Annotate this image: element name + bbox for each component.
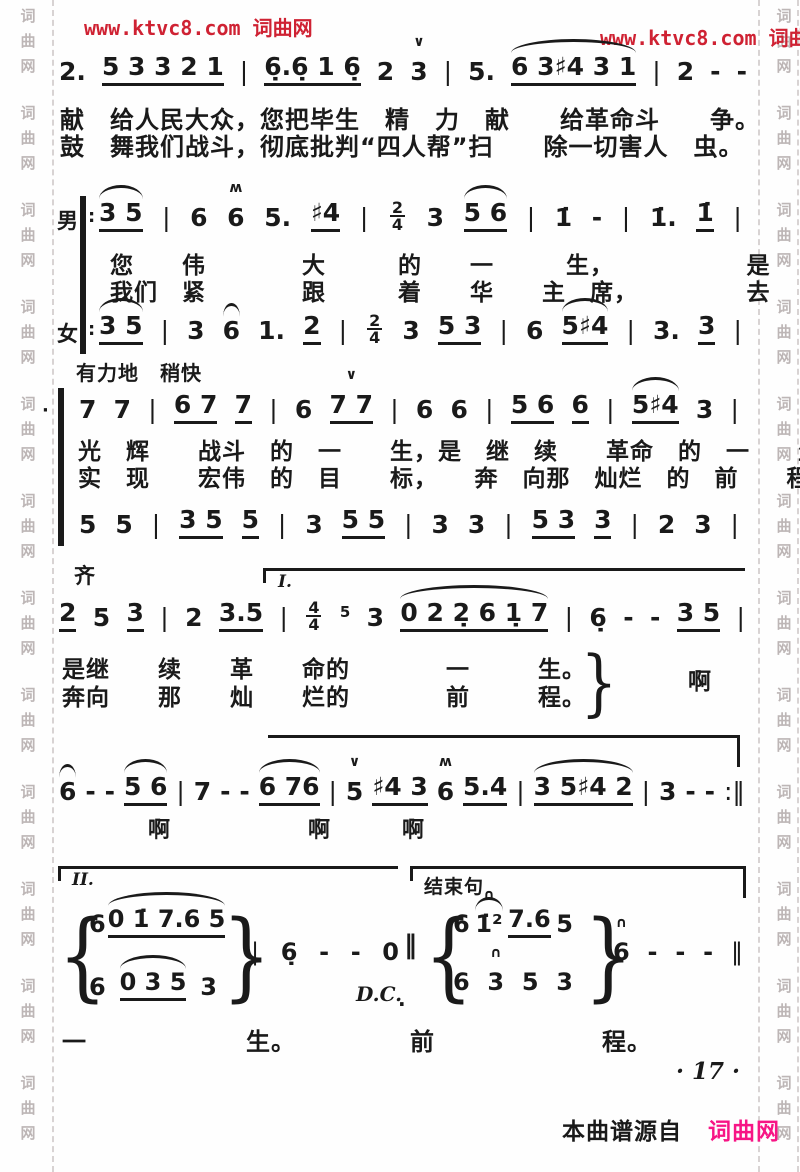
note-token: - [647,938,659,966]
side-watermark-char: 曲 [776,514,791,539]
note-token: 3 [426,203,445,232]
side-watermark-char: 网 [20,636,35,661]
note-token: ♯4 [310,198,342,232]
side-watermark-char: 曲 [776,805,791,830]
ornament-mark: ∨ [346,368,357,382]
note-text: 7 [235,390,252,424]
volta2-bracket [58,866,398,869]
side-watermark-char: 网 [20,830,35,855]
volta1-continuation-bracket [268,735,740,738]
note-text: 6 [89,973,106,1001]
note-text: 5 [346,777,363,806]
note-token: 6 [189,203,208,232]
note-text: 6 [613,938,630,966]
note-text: 5. [468,57,495,86]
note-token: 2 [657,510,676,539]
side-watermark-char: 曲 [20,805,35,830]
note-token: | [651,57,661,86]
note-token: | [159,603,169,632]
note-text: 3 [305,510,322,539]
note-token: 3 [467,510,486,539]
note-token: 3∨ [409,57,428,86]
side-watermark-char: 曲 [20,999,35,1024]
scanned-sheet-music-page: 词曲网词曲网词曲网词曲网词曲网词曲网词曲网词曲网词曲网词曲网词曲网词曲网 词曲网… [0,0,800,1172]
ending-bracket [410,866,746,869]
right-dashed-rule [758,0,760,1172]
note-token: 6 [88,973,107,1001]
footer-source-text: 本曲谱源自 [562,1112,682,1146]
barline: | [627,316,635,345]
barline: | [444,57,452,86]
note-token: 6 76 [258,772,321,806]
barline: | [733,203,741,232]
barline: | [485,395,493,424]
side-watermark-char: 曲 [20,126,35,151]
note-token: 6̣.6̣ 1 6̣ [263,52,361,86]
side-watermark-char: 网 [776,248,791,273]
side-watermark-char: 网 [20,927,35,952]
note-token: | [403,510,413,539]
barline: | [652,57,660,86]
side-watermark-char: 词 [776,1071,791,1096]
note-token: 1̇²∩ [474,910,503,938]
music-line-1: 2.5 3 3 2 1|6̣.6̣ 1 6̣23∨|5.6 3♯4 3 1|2-… [58,52,748,86]
note-token: ‖ [730,938,744,966]
note-text: 3 [694,510,711,539]
note-text: 5 [79,510,96,539]
note-token: 3.5 [218,598,264,632]
time-signature: 24 [366,313,383,345]
note-token: | [151,510,161,539]
note-text: 2 [677,57,694,86]
note-text: 1̇. [650,203,677,232]
barline: | [280,603,288,632]
note-token: 3 [695,395,714,424]
note-token: - [318,938,330,966]
note-token: | [279,603,289,632]
note-text: 5. [264,203,291,232]
music-line-female: 3 5|361.2|2435 3|65♯4|3.3| [98,311,743,345]
note-text: 3 [487,968,504,996]
lyrics-verse2: 鼓 舞我们战斗，彻底批判“四人帮”扫 除一切害人 虫。 [60,127,744,162]
barline: | [176,777,184,806]
side-watermark-char: 曲 [20,223,35,248]
note-token: | [239,57,249,86]
barline: | [390,395,398,424]
barline: | [251,938,259,966]
note-token: 5♯4 [631,390,680,424]
note-text: - [703,938,713,966]
note-token: - [684,777,696,806]
note-token: 3 [126,598,145,632]
note-token: 6 [415,395,434,424]
time-signature: 44 [305,600,322,632]
note-token: | [733,316,743,345]
note-text: 6 [89,910,106,938]
note-text: - [675,938,685,966]
side-watermark-char: 词 [20,4,35,29]
note-token: | [605,395,615,424]
note-token: | [268,395,278,424]
note-token: 1̇ [695,198,714,232]
side-watermark-char: 词 [20,780,35,805]
note-token: | [359,203,369,232]
note-token: | [564,603,574,632]
dc-marking: D.C. [356,982,402,1006]
note-token: 2 [302,311,321,345]
unison-marker: 齐 [74,560,95,590]
note-token: - [649,603,661,632]
note-token: 5 [92,603,111,632]
footer-site-name: 词曲网 [708,1112,780,1146]
note-text: 6 [227,203,244,232]
note-text: - [623,603,633,632]
system-bracket-2 [58,388,64,546]
side-watermark-char: 词 [20,101,35,126]
note-token: - [350,938,362,966]
note-text: 3 [698,311,715,345]
note-token: 3 5 [676,598,722,632]
note-token: | [641,777,651,806]
note-token: 5 [78,510,97,539]
lyrics-final-b: 前 [410,1022,435,1057]
note-text: 6 [223,316,240,345]
note-token: 6 7 [173,390,219,424]
ornament-mark: ∨ [349,755,360,769]
note-token: 5. [467,57,496,86]
note-text: 6 [572,390,589,424]
note-text: 6 [416,395,433,424]
left-watermark-column: 词曲网词曲网词曲网词曲网词曲网词曲网词曲网词曲网词曲网词曲网词曲网词曲网 [16,4,40,1168]
side-watermark-char: 曲 [776,223,791,248]
lyrics-ah-2: 啊 [308,812,331,844]
note-token: | [730,395,740,424]
note-text: 3 [187,316,204,345]
note-token: | [626,316,636,345]
side-watermark-char: 网 [20,345,35,370]
side-watermark-char: 词 [20,974,35,999]
barline: | [278,510,286,539]
music-final-middle: |6̣--0 [250,938,400,966]
note-token: 1̇ [554,203,573,232]
barline: | [630,510,638,539]
note-text: 2 [658,510,675,539]
note-text: - [220,777,230,806]
side-watermark-char: 网 [776,539,791,564]
note-token: | [498,316,508,345]
time-signature-part: 4 [367,328,382,345]
music-final-group2-top: 61̇²∩7.65 [452,905,574,938]
note-text: 3 5 [99,198,143,232]
time-signature: 24 [389,200,406,232]
barline: | [516,777,524,806]
side-watermark-char: 网 [20,151,35,176]
note-text: - [705,777,715,806]
note-token: 3. [652,316,681,345]
note-text: 5 5 [342,505,386,539]
note-text: 6̣ [589,603,606,632]
note-token: - [704,777,716,806]
note-token: 3 [555,968,574,996]
barline: | [734,316,742,345]
note-token: 5 [555,910,574,938]
note-token: 5 [114,510,133,539]
note-text: 6 [295,395,312,424]
note-text: 1̇ [696,198,713,232]
note-text: 6 [59,777,76,806]
side-watermark-char: 网 [20,248,35,273]
side-watermark-char: 曲 [20,1096,35,1121]
note-text: 6 [437,777,454,806]
side-watermark-char: 网 [776,54,791,79]
side-watermark-char: 词 [776,974,791,999]
side-watermark-char: 曲 [20,320,35,345]
note-token: 3 [431,510,450,539]
right-watermark-column: 词曲网词曲网词曲网词曲网词曲网词曲网词曲网词曲网词曲网词曲网词曲网词曲网 [772,4,796,1168]
side-watermark-char: 网 [776,151,791,176]
note-text: ♯4 3 [372,772,428,806]
note-token: - [702,938,714,966]
note-text: ♯4 [311,198,341,232]
note-text: 3 [432,510,449,539]
note-text: 3 5 [677,598,721,632]
side-watermark-char: 词 [20,683,35,708]
note-token: 3 5 [98,311,144,345]
side-watermark-char: 网 [776,733,791,758]
note-text: - [710,57,720,86]
note-token: 6ʍ [226,203,245,232]
note-token: 3 [401,316,420,345]
side-watermark-char: 网 [776,1024,791,1049]
note-text: 3 [659,777,676,806]
barline: | [504,510,512,539]
side-watermark-char: 词 [776,295,791,320]
barline: | [731,510,739,539]
note-text: - [239,777,249,806]
note-text: 3 5♯4 2 [534,772,633,806]
note-text: - [105,777,115,806]
note-token: | [484,395,494,424]
lyrics-unison-b: 奔向 那 灿 烂的 前 [62,678,470,712]
time-signature-part: 2 [392,200,403,215]
music-line-lower-voice: 55|3 55|35 5|33|5 33|23| [78,505,740,539]
note-text: 7 [194,777,211,806]
note-token: 3 5 [98,198,144,232]
note-token: 2 [58,598,77,632]
note-text: 0 2 2̣ 6 1̣ 7 [400,598,548,632]
note-text: 3 [696,395,713,424]
side-watermark-char: 词 [20,1071,35,1096]
note-text: 3 [556,968,573,996]
barline: | [404,510,412,539]
note-token: 3 [693,510,712,539]
note-token: 7.6 [507,905,552,938]
note-token: 6∩ [612,938,631,966]
ornament-mark: ∩ [483,888,494,902]
note-token: 5 3 [531,505,577,539]
ornament-mark: ∨ [413,35,424,49]
music-line-male: 3 5|66ʍ5.♯4|2435 6|1̇-|1̇.1̇| [98,198,743,232]
note-token: | [732,203,742,232]
barline: | [606,395,614,424]
note-token: 0 [381,938,400,966]
ornament-mark: ʍ [229,181,242,195]
side-watermark-char: 曲 [776,126,791,151]
tempo-marking: 有力地 稍快 [76,357,202,386]
note-token: 6̣ [280,938,299,966]
note-token: 7 7∨ [329,390,375,424]
note-token: 6 [525,316,544,345]
barline: | [622,203,630,232]
note-text: 3 [200,973,217,1001]
note-text: 6̣ [281,938,298,966]
side-watermark-char: 曲 [776,611,791,636]
side-watermark-char: 词 [20,198,35,223]
note-text: 0 3 5 [120,968,187,1001]
barline: | [737,603,745,632]
note-token: | [526,203,536,232]
note-text: 3 [594,505,611,539]
note-token: 5 [521,968,540,996]
note-text: 5 [242,505,259,539]
note-text: 2 [377,57,394,86]
repeat-dots-male: : [88,206,95,227]
music-line-melisma: 6--5 6|7--6 76|5∨♯4 36ʍ5.4|3 5♯4 2|3--:‖ [58,772,746,806]
note-text: - [737,57,747,86]
side-watermark-char: 词 [20,877,35,902]
music-final-group1-bottom: 60 3 53 [88,968,218,1001]
note-token: 3 [697,311,716,345]
note-token: 5 [339,603,351,632]
barline: | [499,316,507,345]
lyrics-ah-1: 啊 [148,812,171,844]
time-signature-part: 2 [369,313,380,328]
side-watermark-char: 曲 [776,708,791,733]
note-text: - [650,603,660,632]
note-text: - [351,938,361,966]
time-signature-part: 4 [306,615,321,632]
note-text: 6 [190,203,207,232]
note-token: 6 [222,316,241,345]
barline: | [240,57,248,86]
ornament-mark: ʍ [439,755,452,769]
note-token: 0 1̇ 7.6 5 [107,905,227,938]
note-token: 5∨ [345,777,364,806]
note-text: 3 [427,203,444,232]
note-token: 0 3 5 [119,968,188,1001]
lyrics-brace: } [581,640,618,724]
note-text: 3.5 [219,598,263,632]
note-token: :‖ [723,777,746,806]
lyrics-duet-b: 实 现 宏伟 的 目 标， 奔 向那 灿烂 的 前 程， [78,459,800,493]
ending-label: 结束句 [424,872,484,899]
side-watermark-char: 网 [776,830,791,855]
side-watermark-char: 词 [20,392,35,417]
side-watermark-char: 网 [20,1121,35,1146]
music-line-upper-voice: 77|6 77|67 7∨|66|5 66|5♯43| [78,390,740,424]
note-text: 0 [382,938,399,966]
side-watermark-char: 词 [20,295,35,320]
note-token: 7 [234,390,253,424]
note-text: 7 [114,395,131,424]
lyrics-final-a-end: 生。 [246,1022,296,1057]
note-token: - [219,777,231,806]
note-token: 7 [78,395,97,424]
note-text: 2 [303,311,320,345]
barline: | [160,603,168,632]
side-watermark-char: 曲 [20,611,35,636]
note-token: | [175,777,185,806]
barline: | [161,316,169,345]
note-token: 6̣ [588,603,607,632]
note-text: 5♯4 [632,390,679,424]
note-token: | [389,395,399,424]
side-watermark-char: 词 [776,198,791,223]
volta1-bracket [263,568,745,571]
note-token: | [328,777,338,806]
note-token: 3 [593,505,612,539]
note-text: 1. [258,316,285,345]
note-text: 0 1̇ 7.6 5 [108,905,226,938]
note-token: | [515,777,525,806]
note-token: 6 [58,777,77,806]
note-token: 7 [113,395,132,424]
note-text: 3. [653,316,680,345]
note-text: 6 [453,910,470,938]
side-watermark-char: 词 [20,489,35,514]
lyrics-unison-b-end: 程。 [538,678,586,712]
note-token: - [104,777,116,806]
note-token: | [621,203,631,232]
side-watermark-char: 网 [776,636,791,661]
side-watermark-char: 曲 [776,902,791,927]
note-token: 3 [658,777,677,806]
note-token: 5 3 [437,311,483,345]
barline: | [527,203,535,232]
right-edge-dashed-rule [797,0,799,1172]
note-text: 7 [79,395,96,424]
note-token: 6 [294,395,313,424]
note-token: | [338,316,348,345]
side-watermark-char: 词 [776,683,791,708]
note-text: 3 [468,510,485,539]
note-text: 6 7 [174,390,218,424]
male-voice-marker: 男 [57,205,78,235]
note-text: 5 6 [464,198,508,232]
side-watermark-char: 网 [20,733,35,758]
page-number: · 17 · [676,1058,740,1085]
barline: | [360,203,368,232]
note-token: 3 5 [178,505,224,539]
side-watermark-char: 网 [776,927,791,952]
note-token: | [736,603,746,632]
note-text: 5 [93,603,110,632]
note-token: 6 3♯4 3 1 [510,52,637,86]
side-watermark-char: 词 [776,586,791,611]
note-token: 2 [184,603,203,632]
note-text: 6 [451,395,468,424]
barline: | [339,316,347,345]
note-text: 5 [340,603,350,621]
side-watermark-char: 词 [776,877,791,902]
note-text: 6̣.6̣ 1 6̣ [264,52,360,86]
music-final-group1-top: 60 1̇ 7.6 5 [88,905,218,938]
note-token: | [250,938,260,966]
female-voice-marker: 女 [57,318,78,348]
note-text: - [685,777,695,806]
note-token: 5.4 [462,772,508,806]
side-watermark-char: 词 [20,586,35,611]
